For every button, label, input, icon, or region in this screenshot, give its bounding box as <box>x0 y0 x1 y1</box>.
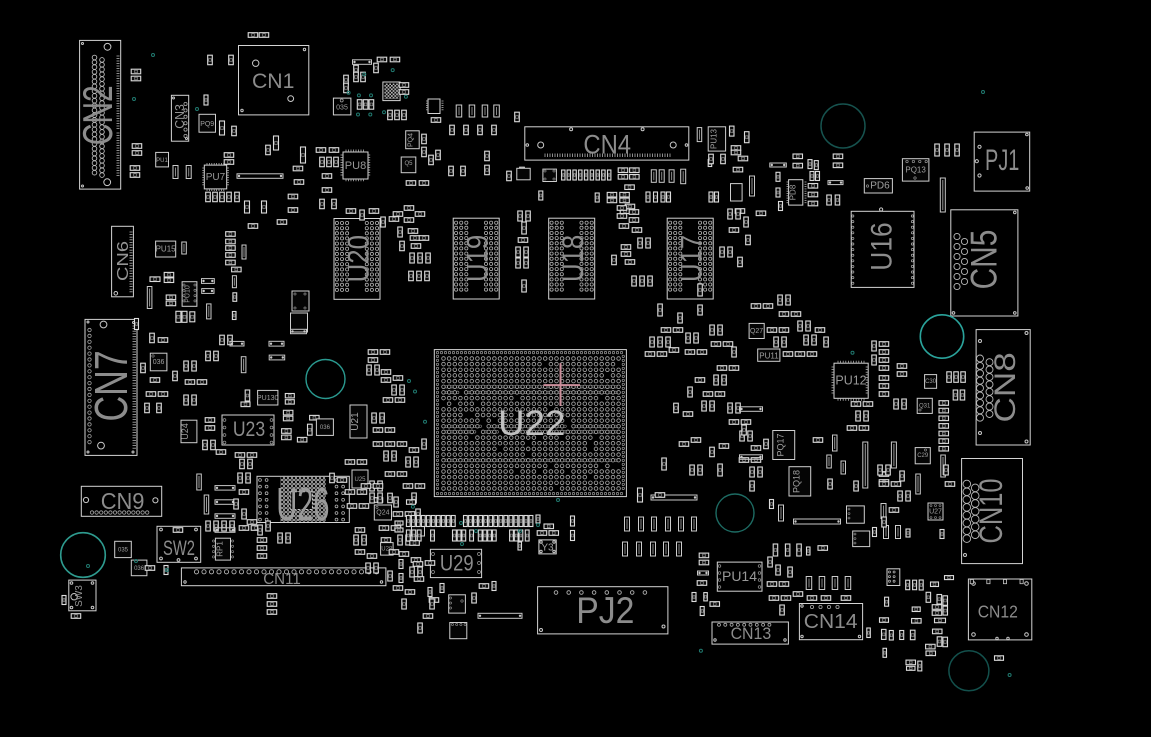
svg-text:PQ13: PQ13 <box>905 166 926 175</box>
svg-text:PU15: PU15 <box>156 245 177 254</box>
svg-text:CN6: CN6 <box>115 241 132 281</box>
svg-text:Q27: Q27 <box>750 328 763 335</box>
svg-text:CN10: CN10 <box>973 478 1009 543</box>
svg-text:CN4: CN4 <box>583 129 631 159</box>
svg-text:PU130: PU130 <box>257 395 279 402</box>
svg-text:U26: U26 <box>276 478 329 530</box>
svg-text:PU7: PU7 <box>206 172 226 183</box>
svg-text:RP1: RP1 <box>216 541 225 557</box>
svg-text:PU11: PU11 <box>759 352 779 361</box>
svg-text:PQ9: PQ9 <box>200 121 214 128</box>
svg-text:036: 036 <box>134 566 145 572</box>
svg-text:PU10: PU10 <box>185 285 192 303</box>
svg-text:PU13: PU13 <box>710 128 719 149</box>
svg-text:U25: U25 <box>354 477 366 483</box>
svg-text:PU1: PU1 <box>156 158 168 164</box>
svg-text:U17: U17 <box>676 235 709 282</box>
svg-text:U21: U21 <box>350 412 361 431</box>
svg-text:PQ17: PQ17 <box>776 433 786 456</box>
svg-text:C29: C29 <box>917 453 929 459</box>
svg-text:CN8: CN8 <box>989 352 1022 422</box>
svg-text:PD8: PD8 <box>789 184 798 200</box>
svg-text:036: 036 <box>153 359 165 366</box>
svg-text:CN11: CN11 <box>263 571 301 588</box>
svg-text:U19: U19 <box>462 235 495 282</box>
svg-text:CN9: CN9 <box>101 488 145 514</box>
svg-text:U20: U20 <box>343 235 376 282</box>
svg-text:C30: C30 <box>925 379 937 385</box>
svg-text:PJ2: PJ2 <box>576 590 634 631</box>
svg-text:CN13: CN13 <box>731 624 772 643</box>
svg-text:U27: U27 <box>929 509 942 516</box>
svg-text:PU12: PU12 <box>835 374 866 388</box>
svg-text:Y3: Y3 <box>541 543 554 554</box>
svg-text:PU8: PU8 <box>345 160 366 172</box>
svg-text:U23: U23 <box>233 417 265 441</box>
svg-text:Q5: Q5 <box>404 161 413 167</box>
svg-text:PQ18: PQ18 <box>792 470 802 493</box>
svg-text:SW2: SW2 <box>163 536 195 560</box>
svg-text:U24: U24 <box>180 423 190 440</box>
svg-text:CN5: CN5 <box>963 230 1004 290</box>
svg-text:U29: U29 <box>440 551 474 576</box>
svg-text:PJ1: PJ1 <box>985 144 1019 177</box>
svg-text:CN1: CN1 <box>252 69 294 93</box>
svg-text:CN14: CN14 <box>804 610 858 633</box>
svg-text:CN2: CN2 <box>74 85 121 145</box>
svg-text:035: 035 <box>336 105 348 112</box>
svg-text:U16: U16 <box>866 222 899 270</box>
svg-text:036: 036 <box>320 425 331 431</box>
svg-text:Q31: Q31 <box>919 404 931 410</box>
svg-text:PD6: PD6 <box>870 181 890 192</box>
svg-text:U22: U22 <box>498 403 565 443</box>
svg-text:CN12: CN12 <box>978 602 1018 622</box>
svg-text:Q24: Q24 <box>376 510 389 517</box>
svg-text:CN3: CN3 <box>172 104 187 129</box>
svg-text:CN7: CN7 <box>85 350 137 421</box>
svg-text:035: 035 <box>118 548 129 554</box>
svg-text:U18: U18 <box>557 235 590 282</box>
svg-text:PU14: PU14 <box>722 568 757 584</box>
svg-text:SW3: SW3 <box>74 585 85 607</box>
svg-text:PQ4: PQ4 <box>407 133 414 147</box>
